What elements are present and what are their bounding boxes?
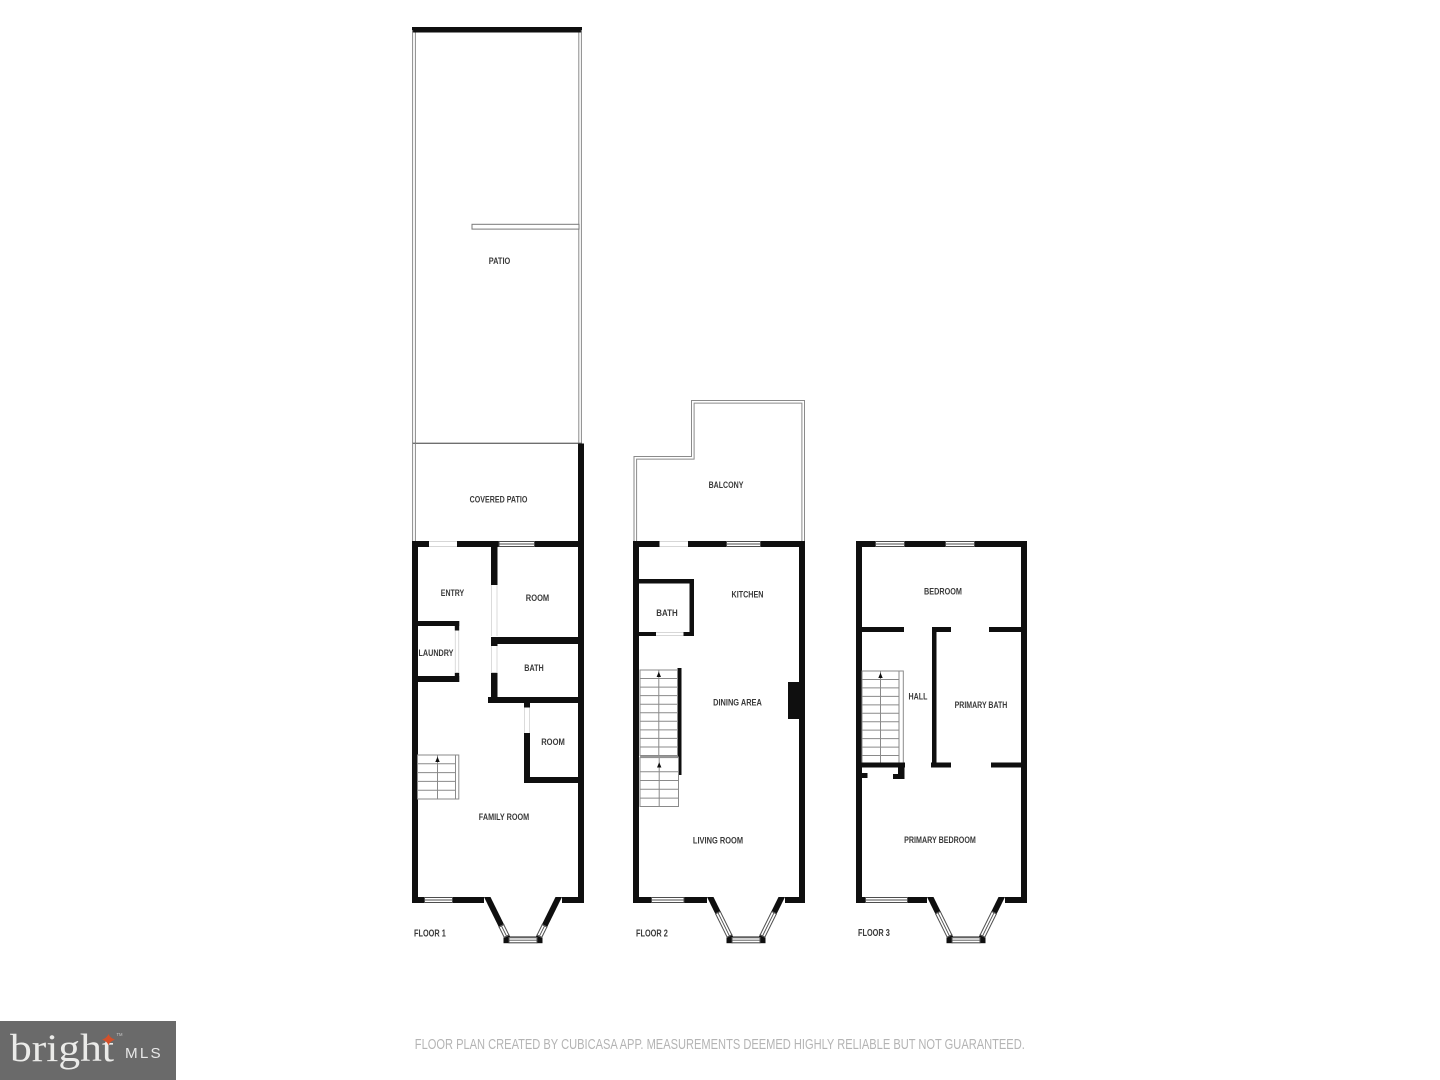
svg-text:HALL: HALL <box>909 692 928 702</box>
svg-text:BALCONY: BALCONY <box>709 480 744 490</box>
svg-text:BATH: BATH <box>656 608 677 618</box>
svg-text:BATH: BATH <box>524 663 544 673</box>
svg-text:ROOM: ROOM <box>541 737 565 747</box>
svg-text:ROOM: ROOM <box>526 593 549 603</box>
svg-text:PRIMARY BATH: PRIMARY BATH <box>955 700 1008 710</box>
svg-text:PATIO: PATIO <box>489 256 511 266</box>
svg-text:DINING AREA: DINING AREA <box>713 698 762 708</box>
svg-text:PRIMARY BEDROOM: PRIMARY BEDROOM <box>904 835 976 845</box>
svg-text:TM: TM <box>117 1032 124 1037</box>
svg-text:bright: bright <box>10 1027 114 1070</box>
svg-text:LAUNDRY: LAUNDRY <box>419 648 454 658</box>
svg-text:COVERED PATIO: COVERED PATIO <box>470 494 528 504</box>
svg-text:LIVING ROOM: LIVING ROOM <box>693 836 743 846</box>
svg-text:KITCHEN: KITCHEN <box>732 590 764 600</box>
svg-text:MLS: MLS <box>125 1045 163 1062</box>
svg-text:FLOOR 3: FLOOR 3 <box>858 928 890 939</box>
svg-text:FAMILY ROOM: FAMILY ROOM <box>479 812 529 822</box>
svg-text:BEDROOM: BEDROOM <box>924 587 962 597</box>
svg-text:FLOOR PLAN CREATED BY CUBICASA: FLOOR PLAN CREATED BY CUBICASA APP. MEAS… <box>415 1037 1025 1053</box>
svg-text:ENTRY: ENTRY <box>441 588 464 598</box>
svg-text:FLOOR 2: FLOOR 2 <box>636 928 668 939</box>
svg-text:FLOOR 1: FLOOR 1 <box>414 928 446 939</box>
